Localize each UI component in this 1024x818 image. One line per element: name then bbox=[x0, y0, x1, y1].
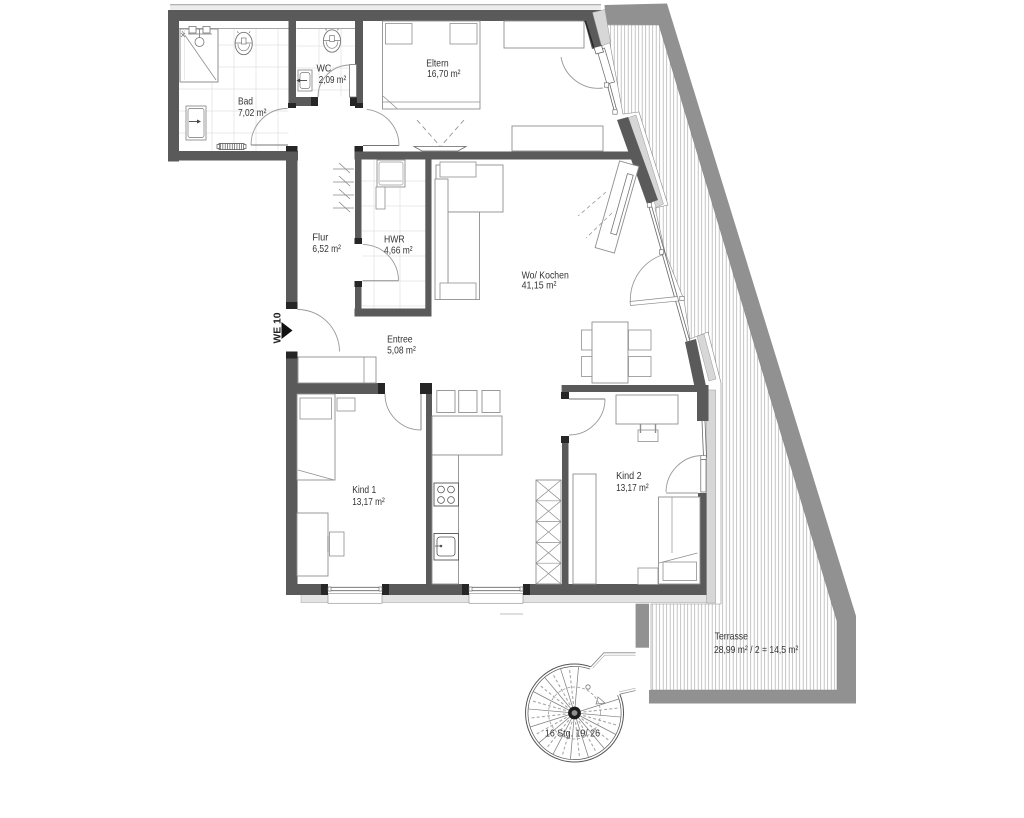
svg-text:41,15 m²: 41,15 m² bbox=[522, 280, 557, 292]
svg-text:16,70 m²: 16,70 m² bbox=[427, 68, 461, 80]
svg-text:Kind 1: Kind 1 bbox=[352, 484, 376, 496]
svg-text:WC: WC bbox=[317, 63, 332, 75]
svg-text:5,08 m²: 5,08 m² bbox=[387, 345, 416, 357]
svg-text:2,09 m²: 2,09 m² bbox=[319, 74, 347, 86]
svg-text:6,52 m²: 6,52 m² bbox=[312, 243, 341, 255]
svg-text:13,17 m²: 13,17 m² bbox=[616, 482, 649, 494]
svg-text:Bad: Bad bbox=[238, 96, 253, 108]
svg-text:Flur: Flur bbox=[312, 232, 328, 244]
svg-text:Entree: Entree bbox=[387, 333, 413, 345]
svg-text:28,99 m² / 2 = 14,5 m²: 28,99 m² / 2 = 14,5 m² bbox=[714, 644, 799, 656]
svg-text:7,02 m²: 7,02 m² bbox=[238, 107, 267, 119]
svg-text:16 Stg. 19/ 26: 16 Stg. 19/ 26 bbox=[545, 728, 600, 740]
svg-text:WE 10: WE 10 bbox=[273, 312, 284, 343]
svg-text:13,17 m²: 13,17 m² bbox=[352, 496, 385, 508]
svg-text:Kind 2: Kind 2 bbox=[616, 470, 642, 482]
svg-text:4,66 m²: 4,66 m² bbox=[384, 244, 413, 256]
svg-text:Terrasse: Terrasse bbox=[715, 630, 749, 642]
